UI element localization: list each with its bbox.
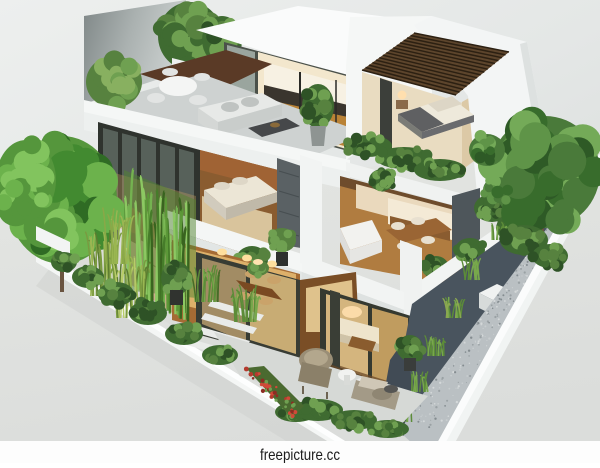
svg-text:freepicture.cc: freepicture.cc xyxy=(260,447,340,463)
